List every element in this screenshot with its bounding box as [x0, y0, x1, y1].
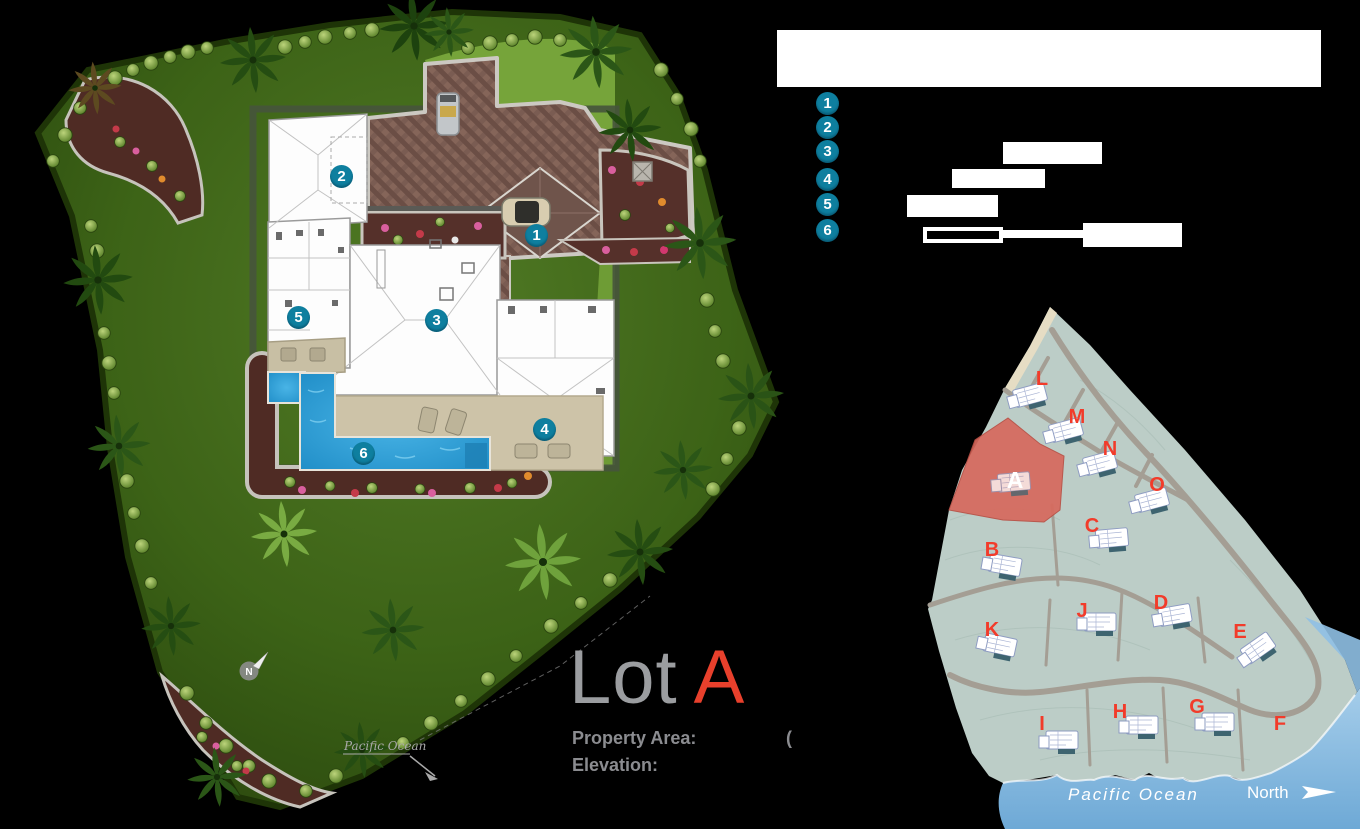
map-lot-a: A	[1007, 467, 1024, 493]
site-plan-page: N Pacific Ocean 1 2 3 4 5 6 1 2 3 4 5 6 …	[0, 0, 1360, 829]
plan-marker-2: 2	[330, 165, 353, 188]
plan-marker-5: 5	[287, 306, 310, 329]
legend-row5-highlight	[907, 195, 998, 217]
property-area-label: Property Area:	[572, 728, 696, 749]
lot-letter: A	[694, 635, 746, 720]
map-lot-k: K	[985, 619, 1000, 641]
compass-label: N	[245, 667, 252, 678]
subdivision-locator-map: L M N O A B C K J D E I H G F Pacific Oc…	[925, 300, 1360, 829]
legend-badge-2: 2	[816, 116, 839, 139]
map-lot-f: F	[1274, 713, 1286, 735]
elevation-label: Elevation:	[572, 755, 658, 776]
plan-marker-1: 1	[525, 224, 548, 247]
plan-marker-6: 6	[352, 442, 375, 465]
map-lot-n: N	[1103, 438, 1117, 460]
map-lot-h: H	[1113, 701, 1127, 723]
patio	[268, 338, 345, 376]
map-lot-e: E	[1233, 621, 1246, 643]
map-lot-g: G	[1189, 696, 1205, 718]
pool-steps	[465, 443, 487, 468]
lot-prefix: Lot	[569, 635, 678, 720]
map-north-label: North	[1247, 783, 1289, 802]
legend-row4-highlight	[952, 169, 1045, 188]
legend-row6-outlined-box	[923, 227, 1003, 243]
map-lot-l: L	[1036, 368, 1048, 390]
legend-badge-5: 5	[816, 193, 839, 216]
legend-row6-highlight	[1083, 223, 1182, 247]
page-title: LotA	[569, 640, 745, 716]
legend-title-banner	[777, 30, 1321, 87]
legend-row3-highlight	[1003, 142, 1102, 164]
plan-ocean-label: Pacific Ocean	[343, 739, 426, 753]
legend-row6-bar	[1003, 230, 1083, 238]
car	[502, 198, 550, 226]
legend-badge-1: 1	[816, 92, 839, 115]
plan-marker-4: 4	[533, 418, 556, 441]
map-lot-b: B	[985, 539, 999, 561]
map-lot-i: I	[1039, 713, 1045, 735]
map-lot-o: O	[1149, 474, 1165, 496]
plan-marker-3: 3	[425, 309, 448, 332]
golf-cart	[437, 93, 459, 135]
property-area-paren: (	[786, 728, 792, 749]
legend-badge-6: 6	[816, 219, 839, 242]
ocean-arrow-icon	[410, 756, 435, 776]
map-ocean-label: Pacific Ocean	[1068, 785, 1199, 804]
map-lot-d: D	[1154, 592, 1168, 614]
map-lot-m: M	[1069, 406, 1086, 428]
legend-badge-4: 4	[816, 168, 839, 191]
map-lot-c: C	[1085, 515, 1099, 537]
map-lot-j: J	[1076, 600, 1087, 622]
legend-badge-3: 3	[816, 140, 839, 163]
